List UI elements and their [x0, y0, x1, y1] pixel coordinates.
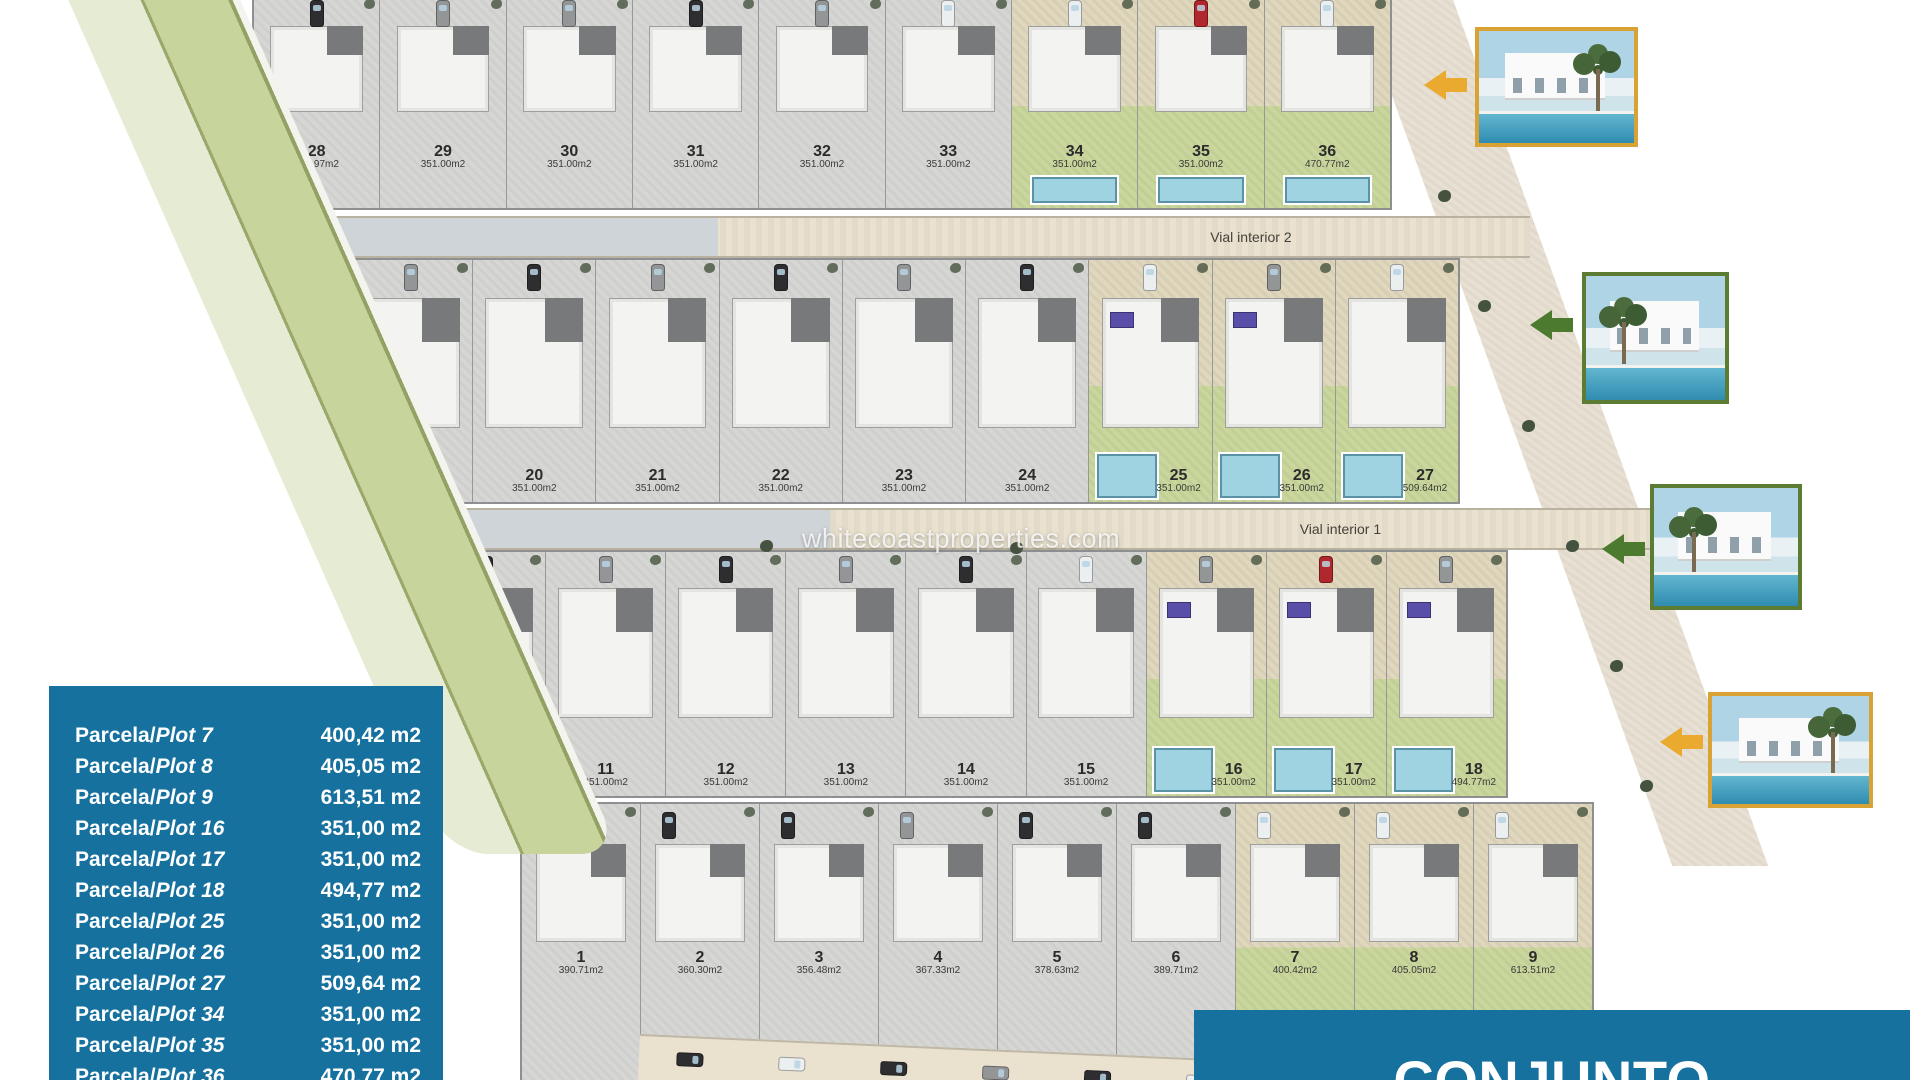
plot-size: 351.00m2 — [1322, 777, 1386, 788]
watermark: whitecoastproperties.com — [802, 524, 1120, 555]
palm-tree-icon — [1593, 65, 1603, 75]
car-icon — [1084, 1070, 1112, 1080]
tree-icon — [760, 540, 773, 552]
plot-number: 31 — [633, 144, 758, 159]
patio — [1186, 844, 1221, 877]
legend-row: Parcela/Plot 9613,51 m2 — [75, 782, 421, 813]
car-icon — [689, 0, 703, 27]
plot-size: 356.48m2 — [760, 965, 878, 976]
masterplan-canvas: 28371.97m229351.00m230351.00m231351.00m2… — [0, 0, 1920, 1080]
plot-size: 351.00m2 — [1269, 483, 1335, 494]
villa-photo-3 — [1650, 484, 1802, 610]
plot-label: 6389.71m2 — [1117, 950, 1235, 976]
plot-31: 31351.00m2 — [633, 0, 759, 208]
house-footprint — [774, 844, 864, 942]
plot-label: 32351.00m2 — [759, 144, 884, 170]
plot-number: 30 — [507, 144, 632, 159]
plot-size: 351.00m2 — [1138, 159, 1263, 170]
house-footprint — [609, 298, 707, 428]
legend-rows: Parcela/Plot 7400,42 m2Parcela/Plot 8405… — [75, 720, 443, 1080]
house-footprint — [485, 298, 583, 428]
plot-label: 13351.00m2 — [786, 762, 905, 788]
tree-icon — [1610, 660, 1623, 672]
plot-number: 1 — [522, 950, 640, 965]
car-icon — [1376, 812, 1390, 839]
photo-villa — [1505, 53, 1604, 98]
car-icon — [839, 556, 853, 583]
car-icon — [1267, 264, 1281, 291]
patio — [616, 588, 653, 632]
patio — [453, 26, 489, 55]
plot-label: 36470.77m2 — [1265, 144, 1390, 170]
plot-22: 22351.00m2 — [720, 260, 843, 502]
car-icon — [599, 556, 613, 583]
patio — [668, 298, 706, 342]
plot-label: 24351.00m2 — [966, 468, 1088, 494]
villa-photo-1 — [1475, 27, 1638, 147]
arrow-left-icon — [1424, 70, 1468, 100]
car-icon — [781, 812, 795, 839]
patio — [915, 298, 953, 342]
patio — [1337, 588, 1374, 632]
car-icon — [527, 264, 541, 291]
patio — [1161, 298, 1199, 342]
photo-pool — [1479, 111, 1634, 143]
patio — [829, 844, 864, 877]
plot-size: 400.42m2 — [1236, 965, 1354, 976]
patio — [1211, 26, 1247, 55]
car-icon — [1320, 0, 1334, 27]
plot-size: 351.00m2 — [596, 483, 718, 494]
legend-plot-label: Parcela/Plot 35 — [75, 1030, 224, 1061]
plot-label: 33351.00m2 — [886, 144, 1011, 170]
legend-plot-label: Parcela/Plot 25 — [75, 906, 224, 937]
car-icon — [774, 264, 788, 291]
patio — [1217, 588, 1254, 632]
house-footprint — [1012, 844, 1102, 942]
plot-size: 351.00m2 — [720, 483, 842, 494]
house-footprint — [893, 844, 983, 942]
legend-plot-label: Parcela/Plot 27 — [75, 968, 224, 999]
patio — [1085, 26, 1121, 55]
patio — [1543, 844, 1578, 877]
road-label: Vial interior 1 — [1300, 521, 1381, 537]
house-footprint — [1155, 26, 1248, 112]
plot-size: 351.00m2 — [786, 777, 905, 788]
plot-18: 18494.77m2 — [1387, 552, 1506, 796]
house-footprint — [1369, 844, 1459, 942]
plot-number: 29 — [380, 144, 505, 159]
plot-number: 24 — [966, 468, 1088, 483]
plot-16: 16351.00m2 — [1147, 552, 1267, 796]
plot-size: 351.00m2 — [633, 159, 758, 170]
patio — [736, 588, 773, 632]
car-icon — [959, 556, 973, 583]
patio — [1067, 844, 1102, 877]
legend-row: Parcela/Plot 18494,77 m2 — [75, 875, 421, 906]
house-footprint — [523, 26, 616, 112]
plot-row-19-27: 19345.38m220351.00m221351.00m222351.00m2… — [348, 258, 1460, 504]
legend-plot-label: Parcela/Plot 18 — [75, 875, 224, 906]
plot-label: 20351.00m2 — [473, 468, 595, 494]
plot-number: 12 — [666, 762, 785, 777]
car-icon — [1138, 812, 1152, 839]
plot-size: 378.63m2 — [998, 965, 1116, 976]
palm-tree-icon — [1828, 728, 1838, 738]
car-icon — [1143, 264, 1157, 291]
plot-21: 21351.00m2 — [596, 260, 719, 502]
car-icon — [941, 0, 955, 27]
house-footprint — [776, 26, 869, 112]
plot-label: 35351.00m2 — [1138, 144, 1263, 170]
car-icon — [1068, 0, 1082, 27]
plot-size: 351.00m2 — [1201, 777, 1265, 788]
car-icon — [900, 812, 914, 839]
plot-number: 6 — [1117, 950, 1235, 965]
villa-photo-2 — [1582, 272, 1729, 404]
legend-row: Parcela/Plot 34351,00 m2 — [75, 999, 421, 1030]
patio — [832, 26, 868, 55]
house-footprint — [855, 298, 953, 428]
tree-icon — [1640, 780, 1653, 792]
plot-23: 23351.00m2 — [843, 260, 966, 502]
plot-row-28-36: 28371.97m229351.00m230351.00m231351.00m2… — [252, 0, 1392, 210]
photo-pool — [1712, 773, 1869, 804]
plot-size: 509.64m2 — [1392, 483, 1458, 494]
plot-label: 4367.33m2 — [879, 950, 997, 976]
plot-number: 35 — [1138, 144, 1263, 159]
car-icon — [880, 1061, 908, 1076]
plot-label: 3356.48m2 — [760, 950, 878, 976]
patio — [948, 844, 983, 877]
plot-size: 367.33m2 — [879, 965, 997, 976]
legend-row: Parcela/Plot 35351,00 m2 — [75, 1030, 421, 1061]
house-footprint — [1038, 588, 1133, 718]
legend-row: Parcela/Plot 26351,00 m2 — [75, 937, 421, 968]
legend-plot-size: 405,05 m2 — [321, 751, 421, 782]
plot-4: 4367.33m2 — [879, 804, 998, 1080]
house-footprint — [1225, 298, 1323, 428]
photo-villa — [1739, 718, 1839, 761]
house-footprint — [1279, 588, 1374, 718]
legend-plot-size: 351,00 m2 — [321, 844, 421, 875]
plot-33: 33351.00m2 — [886, 0, 1012, 208]
legend-plot-label: Parcela/Plot 7 — [75, 720, 213, 751]
legend-plot-size: 494,77 m2 — [321, 875, 421, 906]
plot-size: 351.00m2 — [843, 483, 965, 494]
plot-size: 351.00m2 — [473, 483, 595, 494]
patio — [1096, 588, 1133, 632]
legend-plot-label: Parcela/Plot 26 — [75, 937, 224, 968]
plot-label: 12351.00m2 — [666, 762, 785, 788]
legend-row: Parcela/Plot 7400,42 m2 — [75, 720, 421, 751]
legend-row: Parcela/Plot 27509,64 m2 — [75, 968, 421, 999]
plot-size: 351.00m2 — [759, 159, 884, 170]
legend-plot-label: Parcela/Plot 8 — [75, 751, 213, 782]
car-icon — [982, 1065, 1010, 1080]
plot-size: 351.00m2 — [966, 483, 1088, 494]
plot-36: 36470.77m2 — [1265, 0, 1390, 208]
house-footprint — [918, 588, 1013, 718]
plot-size: 360.30m2 — [641, 965, 759, 976]
legend-plot-size: 351,00 m2 — [321, 937, 421, 968]
solar-panel-icon — [1167, 602, 1191, 618]
plot-size: 351.00m2 — [666, 777, 785, 788]
plot-size: 613.51m2 — [1474, 965, 1592, 976]
patio — [545, 298, 583, 342]
legend-plot-size: 400,42 m2 — [321, 720, 421, 751]
tree-icon — [1478, 300, 1491, 312]
tree-icon — [1566, 540, 1579, 552]
legend-row: Parcela/Plot 36470,77 m2 — [75, 1061, 421, 1080]
plot-number: 3 — [760, 950, 878, 965]
plot-label: 29351.00m2 — [380, 144, 505, 170]
car-icon — [1319, 556, 1333, 583]
car-icon — [404, 264, 418, 291]
car-icon — [436, 0, 450, 27]
solar-panel-icon — [1233, 312, 1257, 328]
patio — [579, 26, 615, 55]
tree-icon — [1438, 190, 1451, 202]
plot-size: 351.00m2 — [507, 159, 632, 170]
legend-plot-size: 351,00 m2 — [321, 1030, 421, 1061]
house-footprint — [1281, 26, 1374, 112]
legend-plot-label: Parcela/Plot 17 — [75, 844, 224, 875]
plot-label: 18494.77m2 — [1442, 762, 1506, 788]
patio — [1407, 298, 1445, 342]
plot-size: 494.77m2 — [1442, 777, 1506, 788]
plot-25: 25351.00m2 — [1089, 260, 1212, 502]
plot-label: 15351.00m2 — [1027, 762, 1146, 788]
car-icon — [662, 812, 676, 839]
plot-13: 13351.00m2 — [786, 552, 906, 796]
car-icon — [676, 1052, 704, 1067]
swimming-pool — [1285, 177, 1370, 203]
plot-label: 2360.30m2 — [641, 950, 759, 976]
car-icon — [1079, 556, 1093, 583]
villa-photo-4 — [1708, 692, 1873, 808]
legend-plot-size: 509,64 m2 — [321, 968, 421, 999]
patio — [1457, 588, 1494, 632]
arrow-left-icon — [1530, 310, 1574, 340]
plot-size: 389.71m2 — [1117, 965, 1235, 976]
patio — [710, 844, 745, 877]
plot-number: 27 — [1392, 468, 1458, 483]
plot-number: 21 — [596, 468, 718, 483]
house-footprint — [649, 26, 742, 112]
house-footprint — [558, 588, 653, 718]
palm-tree-icon — [1689, 528, 1699, 538]
plot-size: 351.00m2 — [1146, 483, 1212, 494]
plot-label: 5378.63m2 — [998, 950, 1116, 976]
solar-panel-icon — [1407, 602, 1431, 618]
swimming-pool — [1158, 177, 1243, 203]
house-footprint — [1250, 844, 1340, 942]
plot-number: 33 — [886, 144, 1011, 159]
car-icon — [310, 0, 324, 27]
road-label: Vial interior 2 — [1210, 229, 1291, 245]
car-icon — [562, 0, 576, 27]
plot-24: 24351.00m2 — [966, 260, 1089, 502]
car-icon — [1199, 556, 1213, 583]
legend-row: Parcela/Plot 16351,00 m2 — [75, 813, 421, 844]
car-icon — [897, 264, 911, 291]
plot-29: 29351.00m2 — [380, 0, 506, 208]
legend-plot-size: 613,51 m2 — [321, 782, 421, 813]
plot-34: 34351.00m2 — [1012, 0, 1138, 208]
plot-32: 32351.00m2 — [759, 0, 885, 208]
plot-number: 34 — [1012, 144, 1137, 159]
patio — [856, 588, 893, 632]
plot-number: 36 — [1265, 144, 1390, 159]
photo-pool — [1586, 365, 1725, 400]
legend-plot-label: Parcela/Plot 34 — [75, 999, 224, 1030]
plot-number: 18 — [1442, 762, 1506, 777]
car-icon — [1495, 812, 1509, 839]
legend-row: Parcela/Plot 25351,00 m2 — [75, 906, 421, 937]
plot-3: 3356.48m2 — [760, 804, 879, 1080]
plot-label: 21351.00m2 — [596, 468, 718, 494]
plot-number: 23 — [843, 468, 965, 483]
legend-row: Parcela/Plot 17351,00 m2 — [75, 844, 421, 875]
plot-number: 16 — [1201, 762, 1265, 777]
house-footprint — [902, 26, 995, 112]
plot-20: 20351.00m2 — [473, 260, 596, 502]
house-footprint — [397, 26, 490, 112]
plot-27: 27509.64m2 — [1336, 260, 1458, 502]
swimming-pool — [1032, 177, 1117, 203]
plot-26: 26351.00m2 — [1213, 260, 1336, 502]
car-icon — [1439, 556, 1453, 583]
solar-panel-icon — [1287, 602, 1311, 618]
plot-label: 31351.00m2 — [633, 144, 758, 170]
plot-label: 23351.00m2 — [843, 468, 965, 494]
patio — [1305, 844, 1340, 877]
road-vial-interior-2: Vial interior 2 — [300, 216, 1530, 258]
patio — [706, 26, 742, 55]
plot-label: 14351.00m2 — [906, 762, 1025, 788]
plot-size: 351.00m2 — [886, 159, 1011, 170]
house-footprint — [678, 588, 773, 718]
car-icon — [1390, 264, 1404, 291]
photo-pool — [1654, 572, 1798, 606]
plot-label: 1390.71m2 — [522, 950, 640, 976]
plot-number: 32 — [759, 144, 884, 159]
house-footprint — [1102, 298, 1200, 428]
arrow-left-icon — [1660, 727, 1704, 757]
plot-label: 8405.05m2 — [1355, 950, 1473, 976]
plot-size: 390.71m2 — [522, 965, 640, 976]
legend-plot-label: Parcela/Plot 36 — [75, 1061, 224, 1080]
plot-number: 17 — [1322, 762, 1386, 777]
patio — [958, 26, 994, 55]
patio — [1038, 298, 1076, 342]
car-icon — [1194, 0, 1208, 27]
plot-label: 34351.00m2 — [1012, 144, 1137, 170]
plot-12: 12351.00m2 — [666, 552, 786, 796]
plot-number: 4 — [879, 950, 997, 965]
house-footprint — [1488, 844, 1578, 942]
plot-number: 2 — [641, 950, 759, 965]
plot-15: 15351.00m2 — [1027, 552, 1147, 796]
plot-number: 20 — [473, 468, 595, 483]
plot-size-legend: Parcela/Plot 7400,42 m2Parcela/Plot 8405… — [49, 686, 443, 1080]
plot-label: 26351.00m2 — [1269, 468, 1335, 494]
house-footprint — [978, 298, 1076, 428]
development-title-box: CONJUNTO RESIDENCIAL — [1194, 1010, 1910, 1080]
house-footprint — [1028, 26, 1121, 112]
car-icon — [778, 1057, 806, 1072]
legend-plot-label: Parcela/Plot 16 — [75, 813, 224, 844]
patio — [976, 588, 1013, 632]
plot-number: 15 — [1027, 762, 1146, 777]
house-footprint — [1348, 298, 1446, 428]
plot-label: 25351.00m2 — [1146, 468, 1212, 494]
plot-number: 9 — [1474, 950, 1592, 965]
tree-icon — [1522, 420, 1535, 432]
house-footprint — [732, 298, 830, 428]
house-footprint — [1159, 588, 1254, 718]
plot-number: 22 — [720, 468, 842, 483]
plot-label: 27509.64m2 — [1392, 468, 1458, 494]
arrow-left-icon — [1602, 534, 1646, 564]
plot-label: 16351.00m2 — [1201, 762, 1265, 788]
legend-plot-size: 351,00 m2 — [321, 906, 421, 937]
patio — [791, 298, 829, 342]
legend-row: Parcela/Plot 8405,05 m2 — [75, 751, 421, 782]
plot-number: 26 — [1269, 468, 1335, 483]
plot-number: 13 — [786, 762, 905, 777]
plot-size: 405.05m2 — [1355, 965, 1473, 976]
plot-30: 30351.00m2 — [507, 0, 633, 208]
plot-row-10-18: 10349.69m211351.00m212351.00m213351.00m2… — [424, 550, 1508, 798]
patio — [1284, 298, 1322, 342]
development-title: CONJUNTO RESIDENCIAL — [1194, 1048, 1910, 1080]
patio — [422, 298, 460, 342]
plot-size: 351.00m2 — [906, 777, 1025, 788]
patio — [1424, 844, 1459, 877]
legend-plot-size: 351,00 m2 — [321, 999, 421, 1030]
car-icon — [815, 0, 829, 27]
legend-plot-size: 351,00 m2 — [321, 813, 421, 844]
patio — [1337, 26, 1373, 55]
plot-label: 22351.00m2 — [720, 468, 842, 494]
plot-label: 17351.00m2 — [1322, 762, 1386, 788]
plot-size: 351.00m2 — [380, 159, 505, 170]
plot-label: 30351.00m2 — [507, 144, 632, 170]
patio — [327, 26, 363, 55]
car-icon — [1019, 812, 1033, 839]
plot-size: 351.00m2 — [1012, 159, 1137, 170]
plot-label: 7400.42m2 — [1236, 950, 1354, 976]
legend-plot-size: 470,77 m2 — [321, 1061, 421, 1080]
plot-size: 351.00m2 — [1027, 777, 1146, 788]
legend-plot-label: Parcela/Plot 9 — [75, 782, 213, 813]
plot-5: 5378.63m2 — [998, 804, 1117, 1080]
car-icon — [651, 264, 665, 291]
plot-number: 25 — [1146, 468, 1212, 483]
plot-number: 7 — [1236, 950, 1354, 965]
car-icon — [719, 556, 733, 583]
solar-panel-icon — [1110, 312, 1134, 328]
house-footprint — [1399, 588, 1494, 718]
plot-35: 35351.00m2 — [1138, 0, 1264, 208]
plot-14: 14351.00m2 — [906, 552, 1026, 796]
car-icon — [1020, 264, 1034, 291]
plot-size: 470.77m2 — [1265, 159, 1390, 170]
house-footprint — [798, 588, 893, 718]
plot-label: 9613.51m2 — [1474, 950, 1592, 976]
